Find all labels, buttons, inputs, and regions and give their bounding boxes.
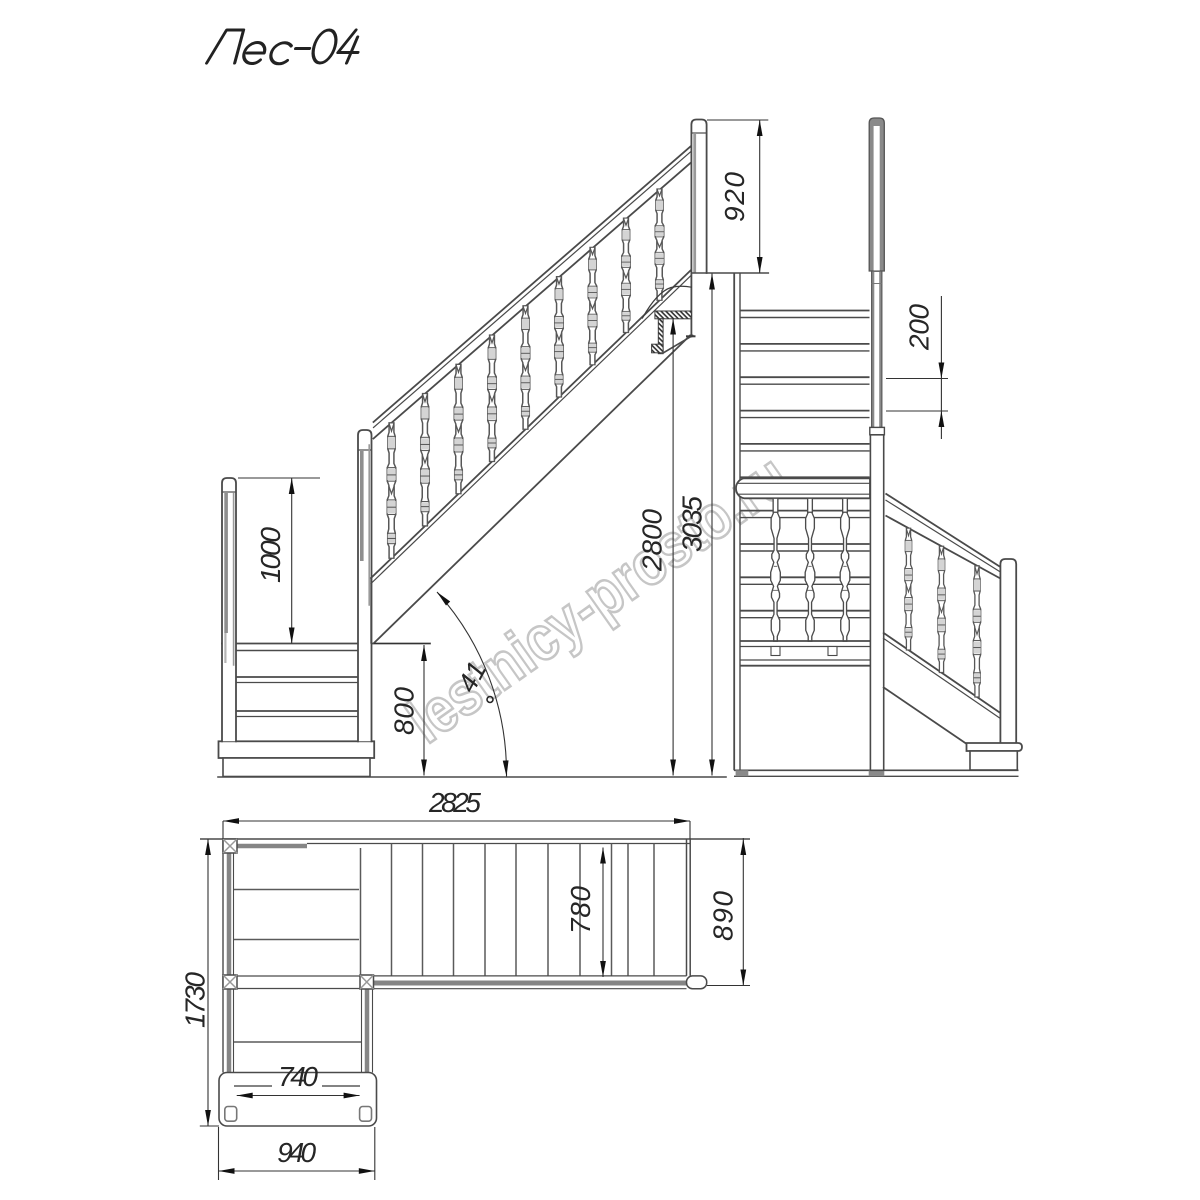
svg-text:1000: 1000 <box>255 527 286 583</box>
svg-text:2800: 2800 <box>637 509 668 572</box>
svg-text:780: 780 <box>565 886 596 934</box>
svg-text:1730: 1730 <box>180 972 211 1028</box>
svg-text:940: 940 <box>277 1137 316 1168</box>
svg-text:2825: 2825 <box>428 787 481 818</box>
svg-text:200: 200 <box>904 304 935 351</box>
svg-text:920: 920 <box>719 172 750 222</box>
svg-text:740: 740 <box>278 1061 318 1092</box>
svg-text:3035: 3035 <box>677 496 708 552</box>
svg-text:890: 890 <box>708 891 739 941</box>
svg-text:800: 800 <box>389 687 420 735</box>
